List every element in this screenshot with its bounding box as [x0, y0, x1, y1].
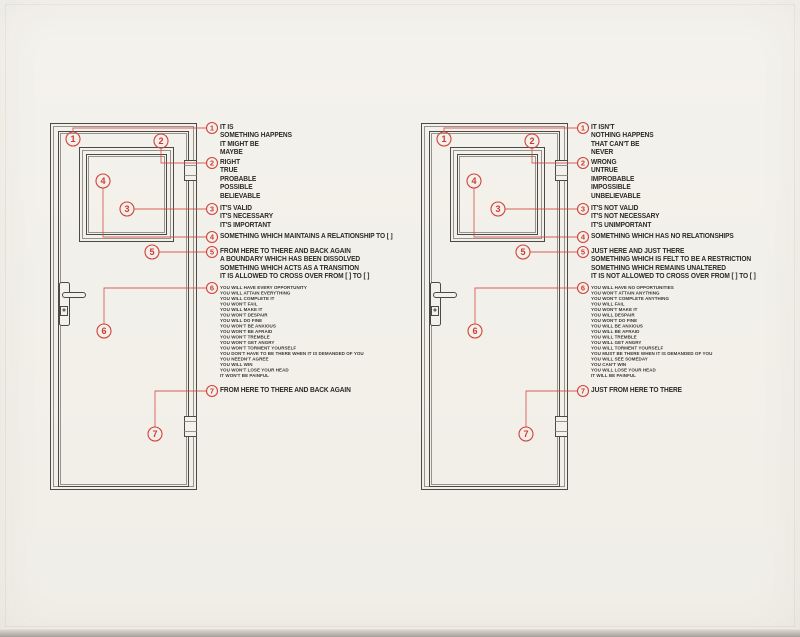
annotation-block-3: IT'S VALIDIT'S NECESSARYIT'S IMPORTANT: [220, 205, 273, 230]
annotation-line: IT ISN'T: [591, 124, 654, 132]
annotation-line: IT IS NOT ALLOWED TO CROSS OVER FROM [ ]…: [591, 273, 756, 281]
annotation-line: FROM HERE TO THERE AND BACK AGAIN: [220, 387, 351, 395]
annotation-line: THAT CAN'T BE: [591, 141, 654, 149]
annotation-block-5: JUST HERE AND JUST THERESOMETHING WHICH …: [591, 248, 756, 282]
annotation-line: NEVER: [591, 149, 654, 157]
annotation-block-4: SOMETHING WHICH MAINTAINS A RELATIONSHIP…: [220, 233, 393, 241]
annotation-block-3: IT'S NOT VALIDIT'S NOT NECESSARYIT'S UNI…: [591, 205, 659, 230]
annotation-line: SOMETHING HAPPENS: [220, 132, 292, 140]
annotation-line: IMPROBABLE: [591, 176, 641, 184]
annotation-block-6: YOU WILL HAVE NO OPPORTUNITIESYOU WON'T …: [591, 285, 800, 472]
annotation-line: POSSIBLE: [220, 184, 260, 192]
annotation-line: WRONG: [591, 159, 641, 167]
annotation-line: IT'S UNIMPORTANT: [591, 222, 659, 230]
annotation-block-4: SOMETHING WHICH HAS NO RELATIONSHIPS: [591, 233, 734, 241]
annotation-line: SOMETHING WHICH IS FELT TO BE A RESTRICT…: [591, 256, 756, 264]
mat-bottom-edge: [0, 629, 800, 637]
annotation-block-1: IT ISSOMETHING HAPPENSIT MIGHT BEMAYBE: [220, 124, 292, 158]
annotation-line: A BOUNDARY WHICH HAS BEEN DISSOLVED: [220, 256, 369, 264]
annotation-texts-right: IT ISN'TNOTHING HAPPENSTHAT CAN'T BENEVE…: [421, 110, 781, 570]
annotation-line: SOMETHING WHICH HAS NO RELATIONSHIPS: [591, 233, 734, 241]
annotation-line: IT IS: [220, 124, 292, 132]
annotation-line: MAYBE: [220, 149, 292, 157]
annotation-texts-left: IT ISSOMETHING HAPPENSIT MIGHT BEMAYBERI…: [50, 110, 410, 570]
annotation-line: SOMETHING WHICH ACTS AS A TRANSITION: [220, 265, 369, 273]
annotation-line: IT WON'T BE PAINFUL: [220, 373, 364, 379]
annotation-block-7: JUST FROM HERE TO THERE: [591, 387, 682, 395]
annotation-line: FROM HERE TO THERE AND BACK AGAIN: [220, 248, 369, 256]
annotation-line: PROBABLE: [220, 176, 260, 184]
annotation-line: IT'S IMPORTANT: [220, 222, 273, 230]
annotation-block-1: IT ISN'TNOTHING HAPPENSTHAT CAN'T BENEVE…: [591, 124, 654, 158]
annotation-line: IT'S NOT NECESSARY: [591, 213, 659, 221]
annotation-line: BELIEVABLE: [220, 193, 260, 201]
annotation-block-2: WRONGUNTRUEIMPROBABLEIMPOSSIBLEUNBELIEVA…: [591, 159, 641, 201]
annotation-line: IT WILL BE PAINFUL: [591, 373, 712, 379]
annotation-block-2: RIGHTTRUEPROBABLEPOSSIBLEBELIEVABLE: [220, 159, 260, 201]
annotation-block-5: FROM HERE TO THERE AND BACK AGAINA BOUND…: [220, 248, 369, 282]
annotation-line: JUST HERE AND JUST THERE: [591, 248, 756, 256]
door-panel-right: 11223344556677 IT ISN'TNOTHING HAPPENSTH…: [421, 110, 781, 570]
annotation-line: SOMETHING WHICH REMAINS UNALTERED: [591, 265, 756, 273]
annotation-line: IT MIGHT BE: [220, 141, 292, 149]
annotation-line: UNBELIEVABLE: [591, 193, 641, 201]
annotation-line: RIGHT: [220, 159, 260, 167]
annotation-line: NOTHING HAPPENS: [591, 132, 654, 140]
annotation-line: IT'S NOT VALID: [591, 205, 659, 213]
annotation-line: IT'S VALID: [220, 205, 273, 213]
annotation-line: IT IS ALLOWED TO CROSS OVER FROM [ ] TO …: [220, 273, 369, 281]
annotation-line: JUST FROM HERE TO THERE: [591, 387, 682, 395]
artwork-sheet: 11223344556677 IT ISSOMETHING HAPPENSIT …: [0, 0, 800, 637]
annotation-line: IT'S NECESSARY: [220, 213, 273, 221]
annotation-line: UNTRUE: [591, 167, 641, 175]
annotation-line: SOMETHING WHICH MAINTAINS A RELATIONSHIP…: [220, 233, 393, 241]
door-panel-left: 11223344556677 IT ISSOMETHING HAPPENSIT …: [50, 110, 410, 570]
annotation-block-7: FROM HERE TO THERE AND BACK AGAIN: [220, 387, 351, 395]
annotation-line: TRUE: [220, 167, 260, 175]
annotation-line: IMPOSSIBLE: [591, 184, 641, 192]
